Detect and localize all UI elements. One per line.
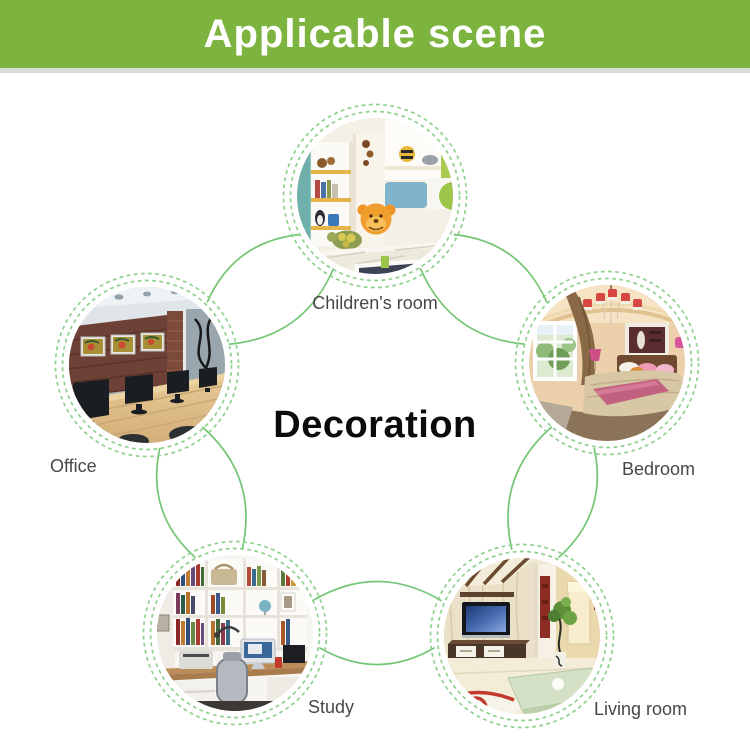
center-label: Decoration <box>273 404 476 447</box>
applicable-scene-infographic: Applicable scene <box>0 0 750 750</box>
living-room-label: Living room <box>594 699 687 720</box>
study-photo <box>155 553 315 715</box>
office-photo <box>67 285 227 448</box>
bedroom-label: Bedroom <box>622 459 695 480</box>
children-room-label: Children's room <box>312 293 437 314</box>
study-label: Study <box>308 697 354 718</box>
living-room-photo <box>440 556 602 721</box>
office-label: Office <box>50 456 97 477</box>
children-room-photo <box>295 116 467 276</box>
scene-diagram <box>0 0 750 750</box>
bedroom-photo <box>529 285 689 445</box>
